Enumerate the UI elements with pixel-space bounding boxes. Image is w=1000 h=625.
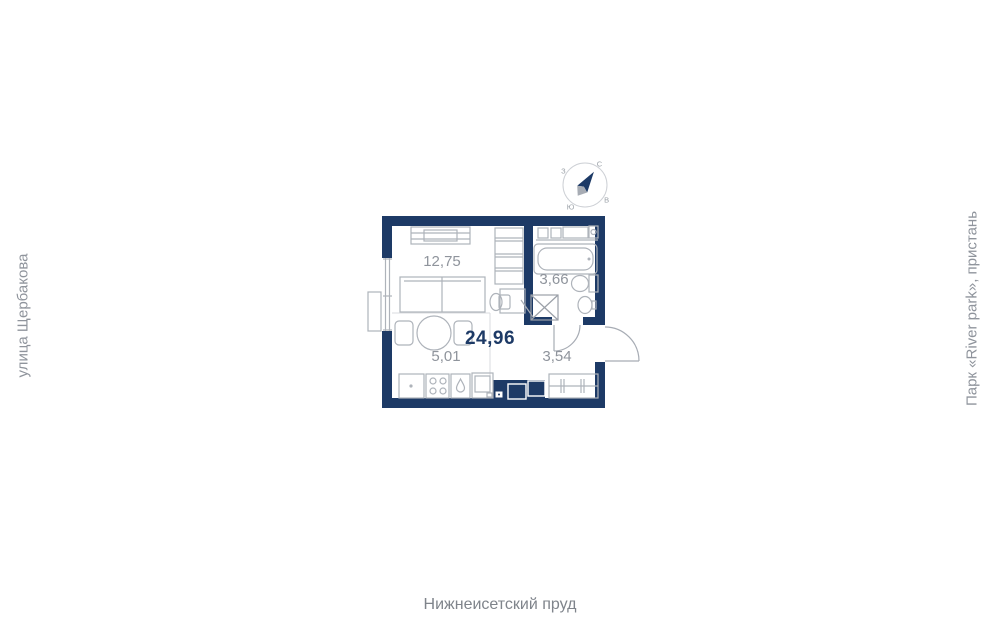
pond-label: Нижнеисетский пруд — [0, 596, 1000, 614]
dining-table — [417, 316, 451, 350]
dining-chair-left — [395, 321, 413, 345]
shower — [531, 295, 558, 320]
floorplan-drawing: С В Ю З — [0, 0, 1000, 625]
toilet — [572, 275, 599, 292]
hallway-area-label: 3,54 — [542, 348, 571, 365]
bathroom-sink — [578, 297, 596, 314]
bathroom-area-label: 3,66 — [539, 271, 568, 288]
tv-stand — [411, 227, 470, 244]
compass-needle-icon — [573, 168, 599, 199]
kitchen-counter — [472, 373, 493, 398]
floorplan-page: улица Щербакова Парк «River park», прист… — [0, 0, 1000, 625]
sofa — [400, 277, 485, 312]
bathroom-shelf — [536, 226, 598, 240]
kitchen-sink — [451, 374, 470, 398]
window-sill — [368, 292, 381, 331]
park-label: Парк «River park», пристань — [964, 179, 981, 439]
wardrobe — [495, 228, 523, 284]
hall-closet — [549, 374, 598, 398]
living-room-area-label: 12,75 — [423, 253, 461, 270]
total-area-label: 24,96 — [465, 328, 515, 349]
compass-south-label: Ю — [567, 203, 575, 212]
bathtub — [534, 244, 597, 274]
street-label: улица Щербакова — [15, 206, 32, 426]
entrance-door — [605, 327, 639, 361]
fridge — [399, 374, 424, 398]
compass-north-label: С — [597, 160, 603, 169]
compass-east-label: В — [604, 196, 609, 205]
compass-west-label: З — [561, 167, 566, 176]
window — [383, 258, 392, 331]
dining-set — [395, 316, 472, 350]
compass: С В Ю З — [561, 160, 609, 212]
stove — [426, 374, 449, 398]
kitchen-area-label: 5,01 — [431, 348, 460, 365]
